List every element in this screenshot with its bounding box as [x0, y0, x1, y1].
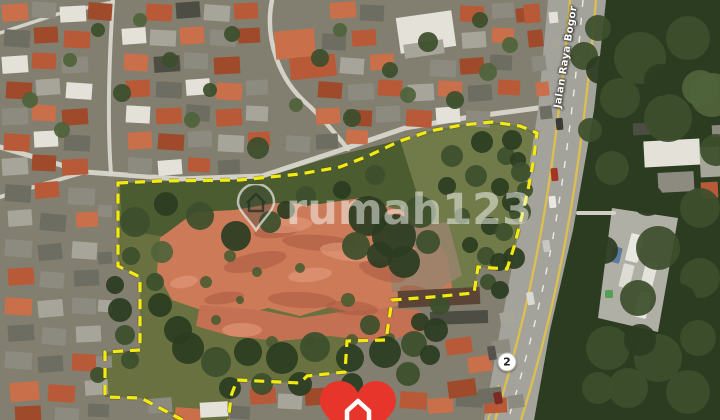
property-pin[interactable] [318, 376, 398, 420]
satellite-imagery [0, 0, 720, 420]
route-shield: 2 [498, 353, 517, 372]
property-pin-icon[interactable] [318, 376, 398, 420]
satellite-map: Jalan Raya Bogor 2 rumah123 [0, 0, 720, 420]
route-number: 2 [503, 357, 511, 368]
